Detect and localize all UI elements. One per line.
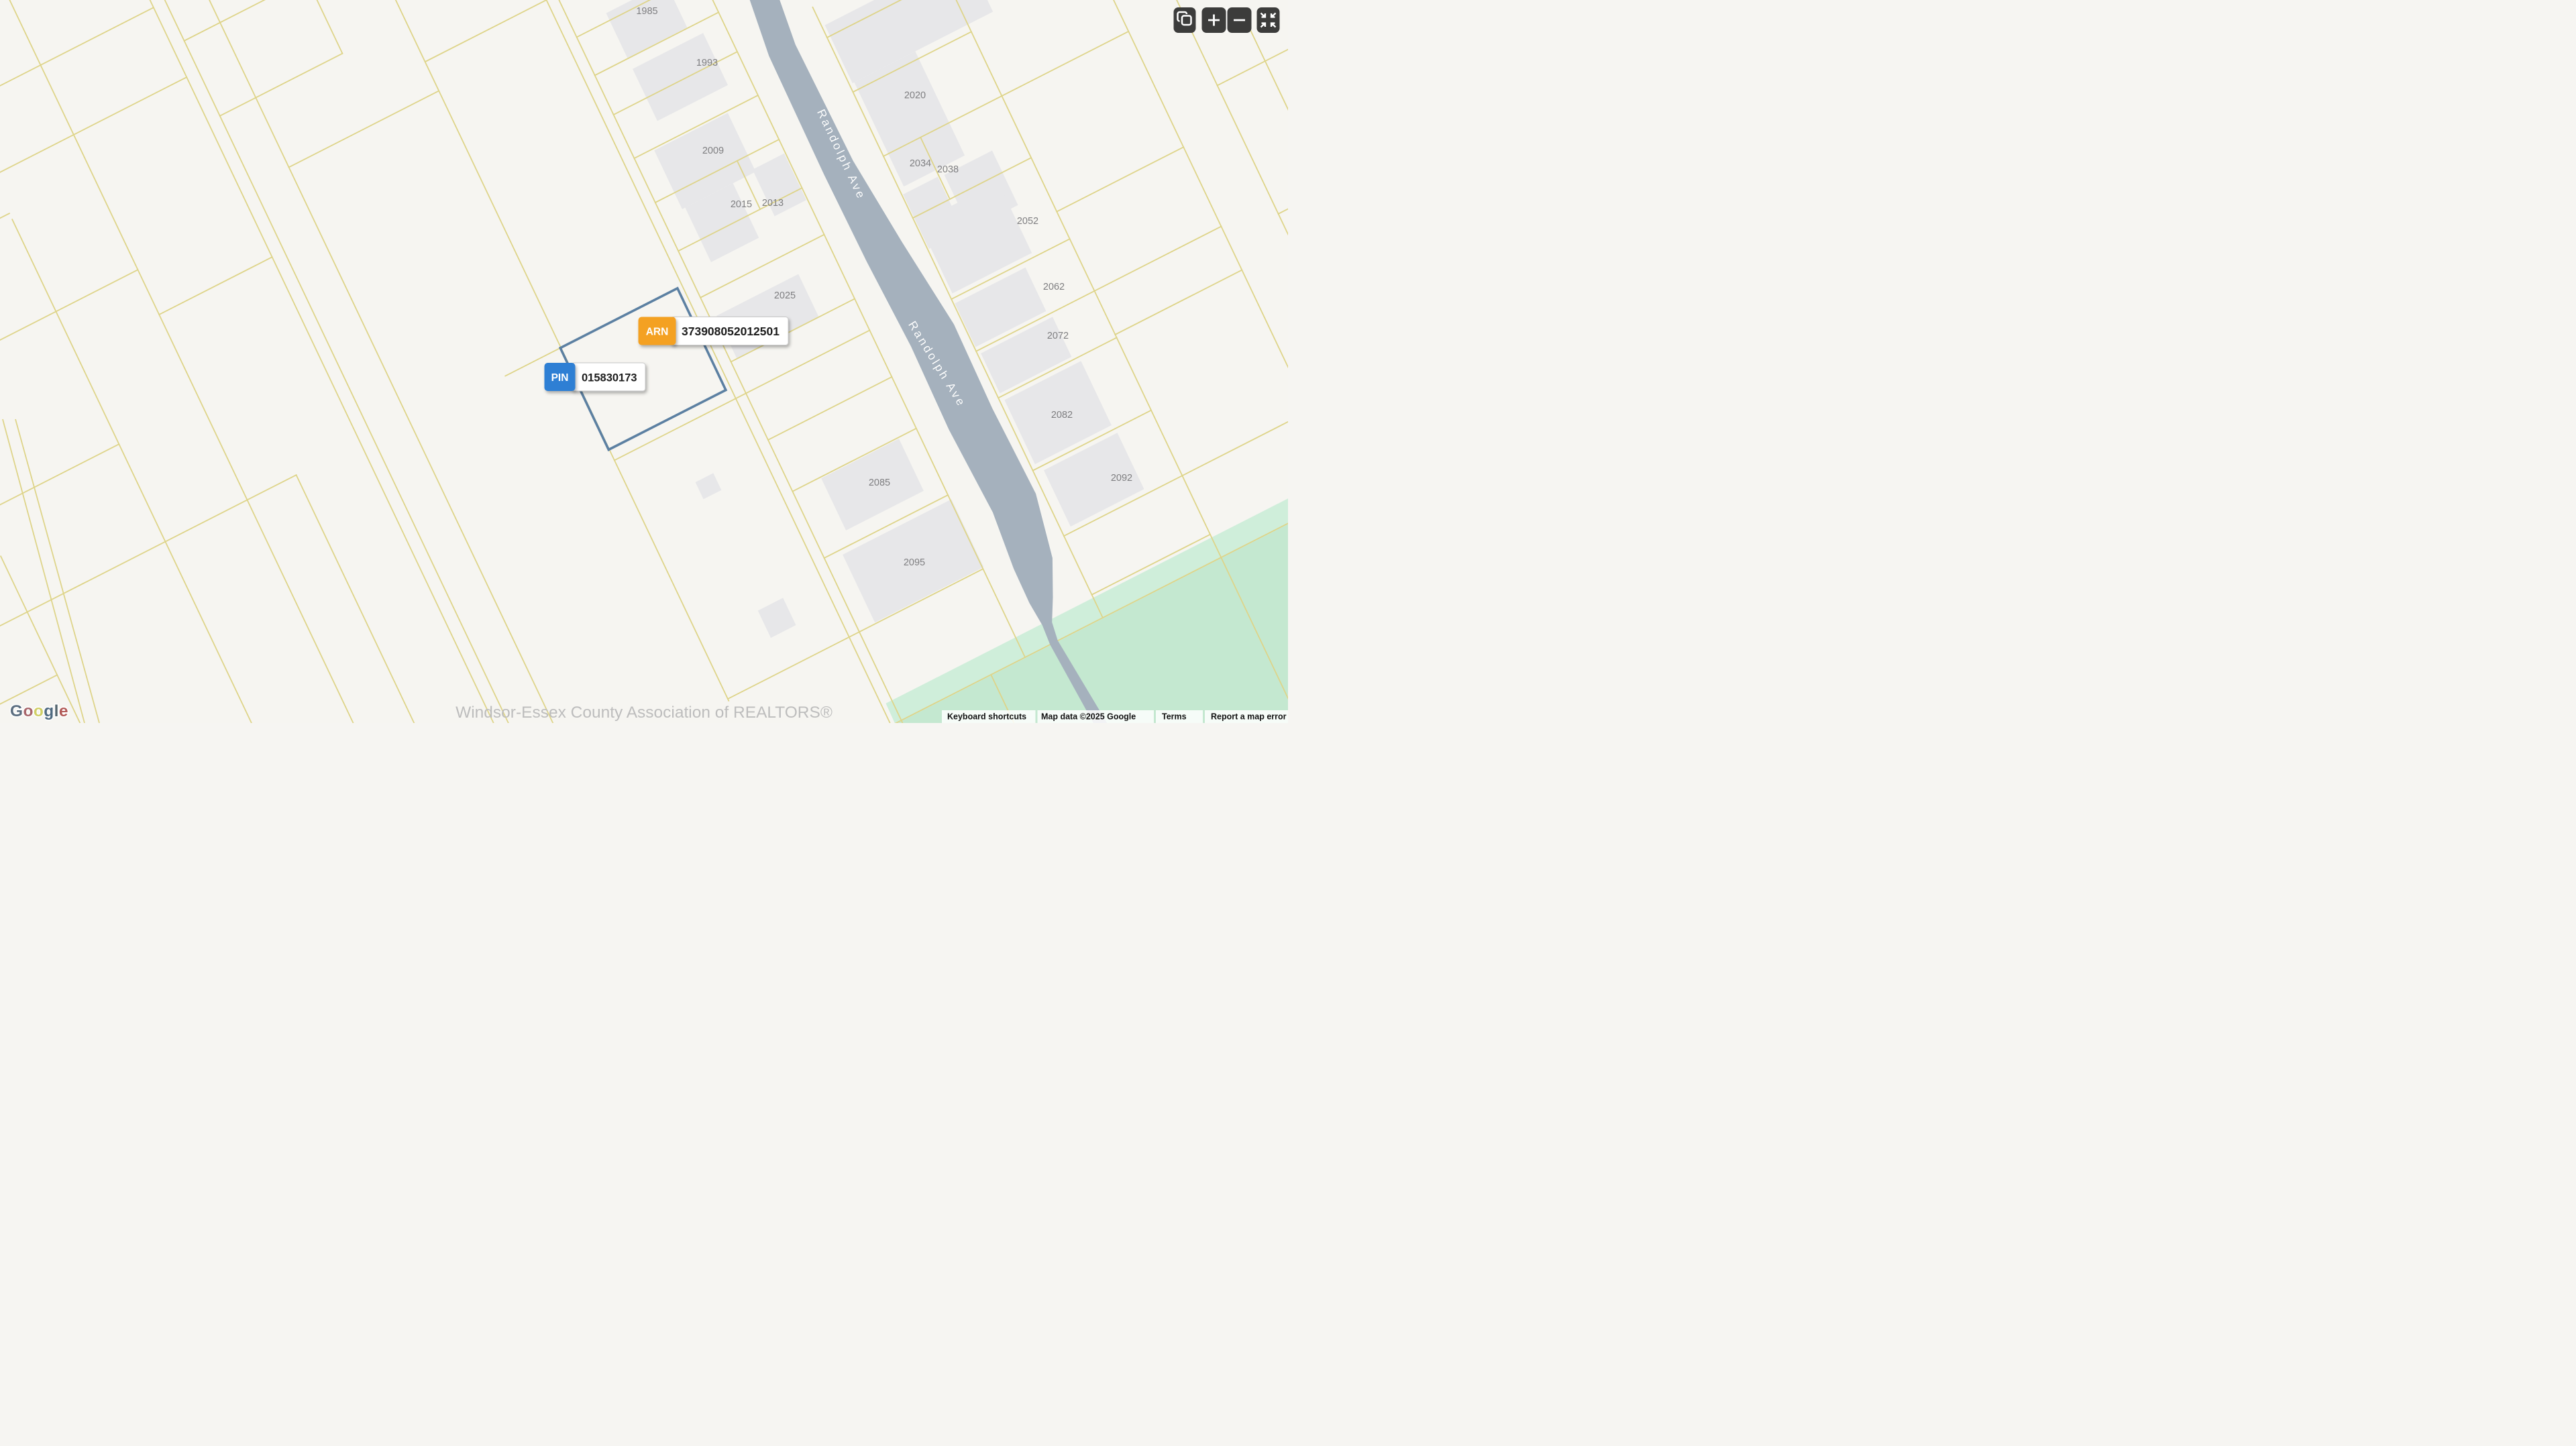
svg-text:2020: 2020 — [904, 91, 926, 101]
svg-text:2062: 2062 — [1043, 282, 1065, 292]
svg-text:2082: 2082 — [1051, 410, 1073, 421]
svg-text:2038: 2038 — [937, 164, 959, 175]
svg-text:2025: 2025 — [774, 290, 796, 301]
svg-text:Terms: Terms — [1162, 712, 1187, 722]
svg-text:2095: 2095 — [904, 557, 925, 568]
svg-text:Keyboard shortcuts: Keyboard shortcuts — [947, 712, 1026, 722]
svg-text:PIN: PIN — [551, 372, 569, 384]
svg-text:373908052012501: 373908052012501 — [682, 325, 780, 338]
svg-text:2009: 2009 — [702, 146, 724, 156]
svg-text:2072: 2072 — [1047, 331, 1069, 341]
svg-text:2052: 2052 — [1017, 216, 1038, 227]
svg-text:2034: 2034 — [910, 158, 931, 169]
svg-text:015830173: 015830173 — [582, 372, 637, 384]
svg-text:Report a map error: Report a map error — [1211, 712, 1287, 722]
svg-text:1993: 1993 — [696, 58, 718, 68]
svg-text:1985: 1985 — [636, 6, 657, 17]
svg-text:ARN: ARN — [646, 327, 669, 338]
svg-text:2085: 2085 — [869, 478, 890, 488]
svg-text:2092: 2092 — [1111, 473, 1132, 484]
svg-text:Map data ©2025 Google: Map data ©2025 Google — [1041, 712, 1136, 722]
svg-text:2013: 2013 — [762, 198, 784, 209]
svg-text:2015: 2015 — [731, 199, 752, 210]
svg-text:Windsor-Essex County Associati: Windsor-Essex County Association of REAL… — [455, 704, 833, 722]
svg-text:Google: Google — [10, 702, 68, 720]
